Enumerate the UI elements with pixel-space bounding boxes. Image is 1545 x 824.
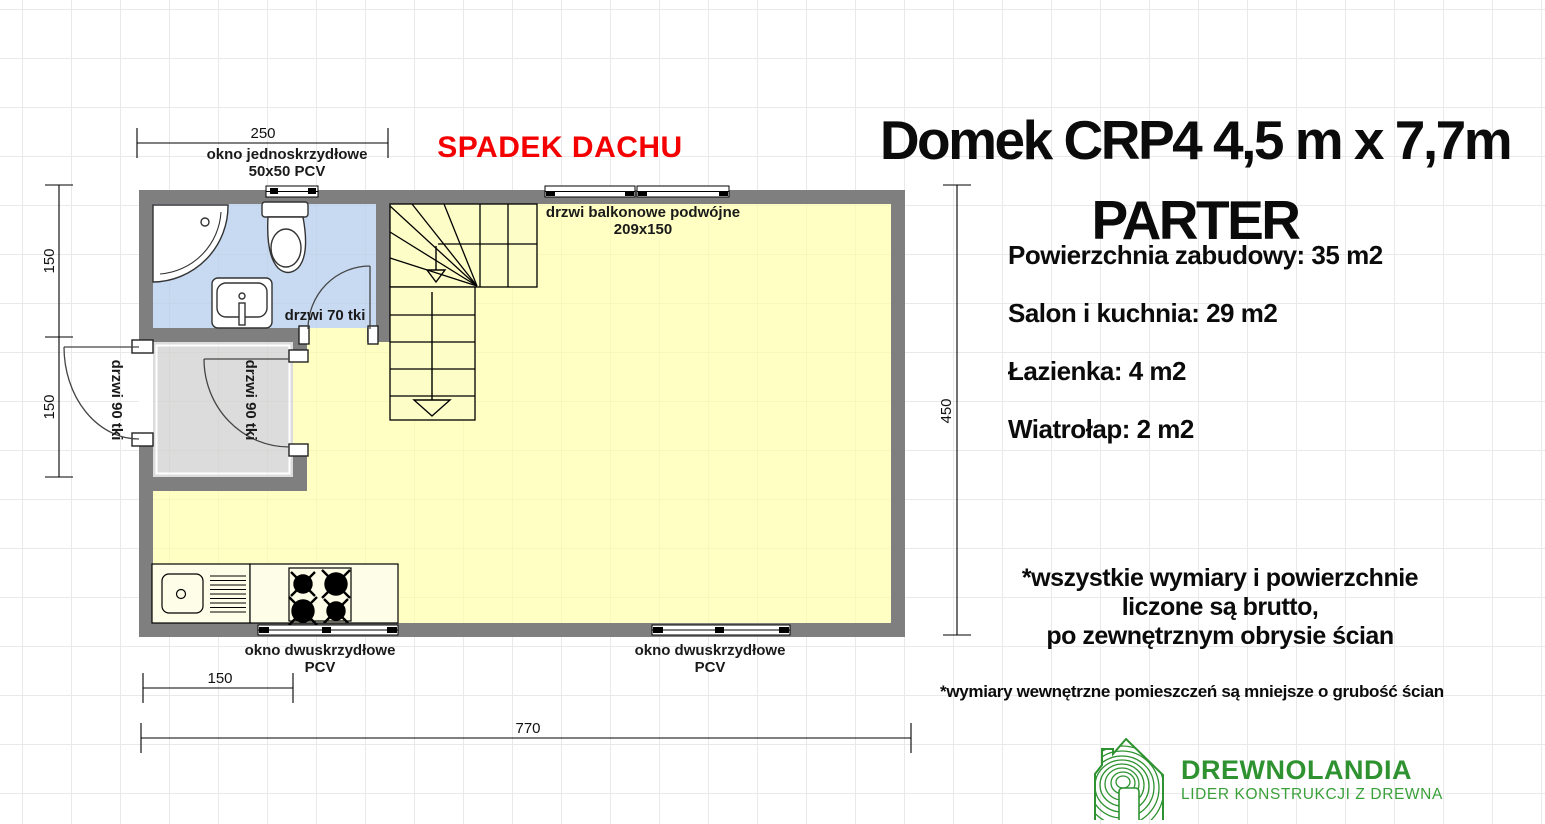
dim-right-height: 450 [938, 398, 955, 423]
balcony-door-label-line1: drzwi balkonowe podwójne [546, 204, 740, 221]
stat-built-area: Powierzchnia zabudowy: 35 m2 [1008, 226, 1383, 284]
stat-bathroom: Łazienka: 4 m2 [1008, 342, 1383, 400]
bathroom-wall-left-segment [139, 328, 308, 342]
dim-top-width: 250 [250, 125, 275, 142]
dim-left-lower: 150 [41, 394, 58, 419]
vestibule-door-jamb-top [289, 350, 308, 362]
brutto-note: *wszystkie wymiary i powierzchnie liczon… [985, 564, 1455, 651]
window-bottom-left-label-line1: okno dwuskrzydłowe [245, 642, 396, 659]
shower-drain [201, 218, 209, 226]
brutto-note-line1: *wszystkie wymiary i powierzchnie [985, 564, 1455, 593]
window-top-label-line2: 50x50 PCV [249, 163, 326, 180]
toilet-seat [271, 229, 301, 267]
stat-vestibule: Wiatrołap: 2 m2 [1008, 400, 1383, 458]
company-logo: DREWNOLANDIA LIDER KONSTRUKCJI Z DREWNA [1085, 738, 1443, 822]
toilet-tank [262, 202, 308, 217]
window-bottom-right-label-line2: PCV [695, 659, 726, 676]
logo-text: DREWNOLANDIA LIDER KONSTRUKCJI Z DREWNA [1181, 755, 1443, 805]
brutto-note-line3: po zewnętrznym obrysie ścian [985, 622, 1455, 651]
stair-partition-wall [376, 204, 390, 342]
logo-house-door [1119, 788, 1139, 820]
window-bottom-right-label-line1: okno dwuskrzydłowe [635, 642, 786, 659]
washbasin-drain-column [239, 303, 245, 325]
window-top-label-line1: okno jednoskrzydłowe [207, 146, 368, 163]
kitchen-sink [162, 574, 203, 613]
window-bottom-left-symbol [258, 625, 398, 635]
vestibule-door-jamb-bottom [289, 444, 308, 456]
brutto-note-line2: liczone są brutto, [985, 593, 1455, 622]
page: 250 150 150 450 150 770 SPADEK DACHU okn… [0, 0, 1545, 824]
title-line1: Domek CRP4 4,5 m x 7,7m [845, 100, 1545, 180]
entry-door-opening [139, 353, 153, 433]
balcony-door-symbol [545, 186, 729, 197]
washbasin-tap [239, 293, 245, 299]
dim-bottom-small: 150 [207, 670, 232, 687]
balcony-door-label-line2: 209x150 [614, 221, 672, 238]
kitchen [152, 564, 398, 625]
window-top-small [266, 186, 318, 197]
dim-left-upper: 150 [41, 248, 58, 273]
logo-name: DREWNOLANDIA [1181, 755, 1443, 785]
dim-line-left-150s [45, 185, 73, 477]
vestibule-bottom-wall [139, 477, 307, 491]
vestibule-door-label: drzwi 90 tki [242, 360, 259, 441]
roof-slope-label: SPADEK DACHU [437, 131, 682, 164]
bath-door-label: drzwi 70 tki [285, 307, 366, 324]
logo-tagline: LIDER KONSTRUKCJI Z DREWNA [1181, 785, 1443, 805]
entry-door-arc [64, 347, 139, 439]
area-stats: Powierzchnia zabudowy: 35 m2 Salon i kuc… [1008, 226, 1383, 458]
stat-living-kitchen: Salon i kuchnia: 29 m2 [1008, 284, 1383, 342]
dim-bottom-total: 770 [515, 720, 540, 737]
logo-house-icon [1085, 738, 1165, 822]
window-bottom-right-symbol [652, 625, 790, 635]
internal-dims-note: *wymiary wewnętrzne pomieszczeń są mniej… [940, 682, 1440, 702]
entry-door-label: drzwi 90 tki [108, 360, 125, 441]
window-bottom-left-label-line2: PCV [305, 659, 336, 676]
